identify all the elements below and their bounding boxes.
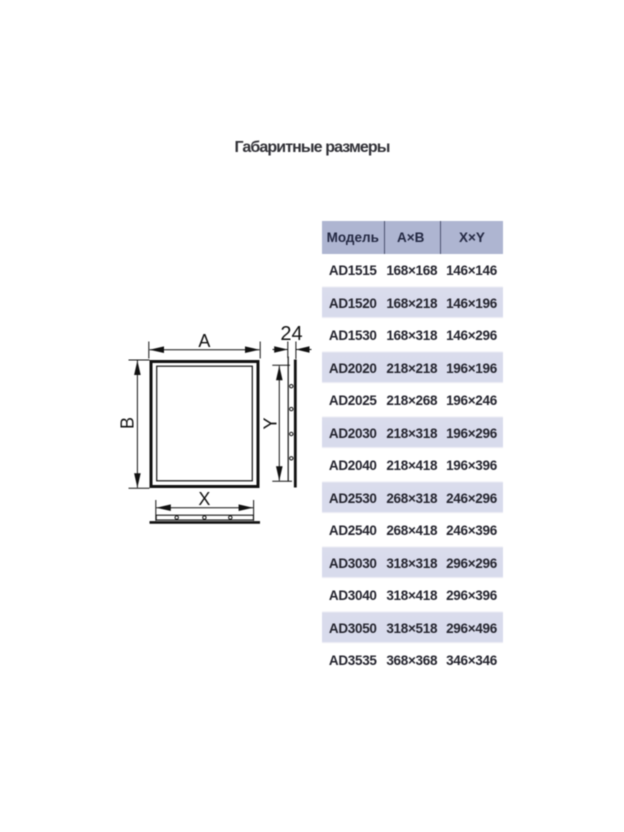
svg-text:24: 24: [280, 323, 302, 345]
svg-text:A: A: [198, 331, 210, 351]
svg-text:B: B: [118, 417, 138, 429]
svg-text:Y: Y: [261, 417, 281, 429]
svg-text:X: X: [198, 489, 210, 509]
